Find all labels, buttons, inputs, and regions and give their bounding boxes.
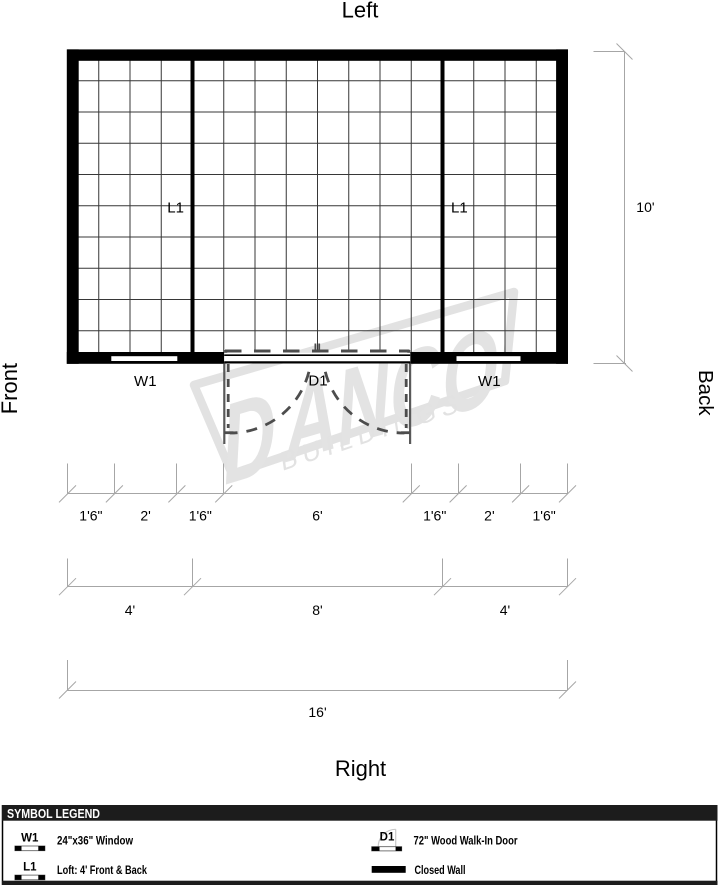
svg-text:1'6": 1'6" bbox=[79, 507, 102, 523]
svg-text:1'6": 1'6" bbox=[532, 507, 555, 523]
svg-text:24"x36" Window: 24"x36" Window bbox=[57, 835, 133, 847]
svg-text:4': 4' bbox=[125, 602, 135, 618]
svg-text:D1: D1 bbox=[380, 832, 395, 844]
svg-text:W1: W1 bbox=[478, 373, 501, 390]
svg-text:D1: D1 bbox=[308, 373, 327, 390]
svg-text:1'6": 1'6" bbox=[423, 507, 446, 523]
svg-text:W1: W1 bbox=[21, 833, 39, 845]
svg-text:6': 6' bbox=[312, 507, 322, 523]
svg-text:Left: Left bbox=[342, 0, 379, 22]
svg-text:10': 10' bbox=[636, 199, 654, 215]
svg-text:2': 2' bbox=[140, 507, 150, 523]
svg-text:Closed Wall: Closed Wall bbox=[415, 865, 466, 877]
svg-text:W1: W1 bbox=[134, 373, 157, 390]
svg-text:16': 16' bbox=[308, 704, 326, 720]
svg-text:L1: L1 bbox=[167, 199, 184, 216]
svg-text:Back: Back bbox=[694, 370, 717, 416]
svg-text:Right: Right bbox=[335, 756, 386, 781]
svg-text:72" Wood Walk-In Door: 72" Wood Walk-In Door bbox=[414, 835, 518, 847]
svg-text:1'6": 1'6" bbox=[189, 507, 212, 523]
svg-text:2': 2' bbox=[484, 507, 494, 523]
svg-text:Loft: 4' Front & Back: Loft: 4' Front & Back bbox=[57, 865, 147, 877]
svg-text:Front: Front bbox=[0, 363, 22, 414]
svg-text:L1: L1 bbox=[23, 862, 37, 874]
svg-text:L1: L1 bbox=[451, 199, 468, 216]
svg-text:4': 4' bbox=[500, 602, 510, 618]
svg-text:SYMBOL LEGEND: SYMBOL LEGEND bbox=[7, 807, 100, 821]
svg-text:8': 8' bbox=[312, 602, 322, 618]
